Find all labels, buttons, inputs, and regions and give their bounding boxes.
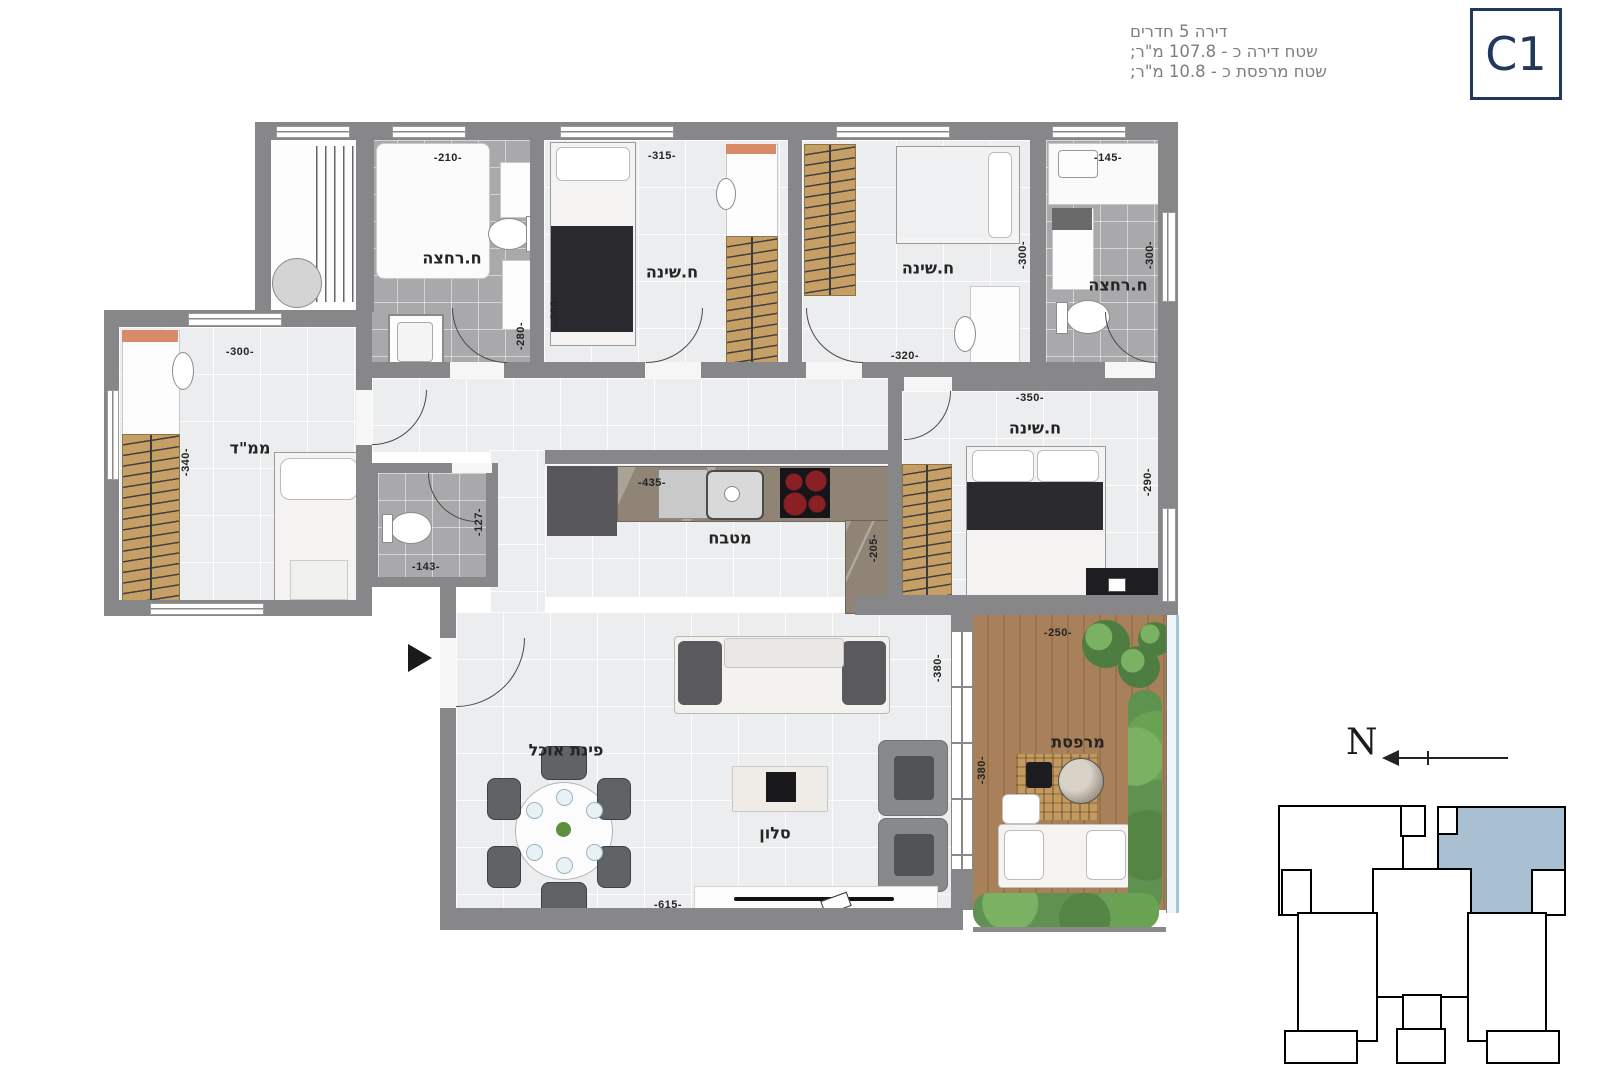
- entrance-arrow-icon: [408, 644, 432, 672]
- room-label-dining: פינת אוכל: [529, 741, 604, 760]
- wall: [356, 140, 374, 312]
- dim-bathroom2-width: -145-: [1094, 152, 1122, 164]
- sofa-pillow: [678, 641, 722, 705]
- wall: [486, 473, 498, 577]
- key-plan-unit: [1486, 1030, 1560, 1064]
- toilet-tank: [1056, 302, 1068, 334]
- toilet-bowl: [390, 512, 432, 544]
- desk-accent: [726, 144, 776, 154]
- desk: [122, 330, 180, 436]
- glass-railing: [1166, 615, 1179, 913]
- dim-bathroom2-height: -300-: [1144, 241, 1156, 269]
- room-label-living: סלון: [759, 824, 791, 843]
- wardrobe: [902, 464, 952, 610]
- header-text-block: דירה 5 חדרים שטח דירה כ - 107.8 מ"ר; שטח…: [1130, 22, 1456, 82]
- window: [188, 313, 282, 326]
- door-threshold: [1105, 362, 1155, 378]
- room-label-kitchen: מטבח: [708, 529, 751, 548]
- wall: [951, 868, 973, 910]
- wardrobe: [726, 236, 778, 364]
- window: [276, 126, 350, 138]
- desk-accent: [122, 330, 178, 342]
- sliding-door: [951, 631, 973, 870]
- door-threshold: [645, 362, 701, 378]
- sofa-cushions: [724, 638, 844, 668]
- key-plan-core: [1400, 805, 1426, 837]
- cooktop: [780, 468, 830, 518]
- floor-plan-page: דירה 5 חדרים שטח דירה כ - 107.8 מ"ר; שטח…: [0, 0, 1600, 1067]
- sink-basin: [1058, 150, 1098, 178]
- dim-bedroom2-height: -300-: [1017, 241, 1029, 269]
- window: [560, 126, 674, 138]
- wall: [530, 140, 544, 364]
- armchair-pillow: [894, 834, 934, 876]
- room-label-balcony: מרפסת: [1051, 733, 1105, 752]
- room-label-master-bedroom: ח.שינה: [1009, 419, 1061, 438]
- unit-code-badge: C1: [1470, 8, 1562, 100]
- outdoor-cushion: [1086, 830, 1126, 880]
- key-plan-notch: [1281, 869, 1312, 916]
- dim-bedroom1-width: -315-: [648, 150, 676, 162]
- room-label-bedroom2: ח.שינה: [902, 259, 954, 278]
- north-arrow-line: [1396, 757, 1508, 759]
- place-setting: [526, 844, 543, 861]
- dim-master-height: -290-: [1142, 468, 1154, 496]
- dim-bedroom2-width: -320-: [891, 350, 919, 362]
- door-threshold: [450, 362, 504, 378]
- desk-chair: [172, 352, 194, 390]
- desk-chair: [954, 316, 976, 352]
- place-setting: [586, 802, 603, 819]
- wall: [368, 577, 498, 587]
- wall: [951, 615, 973, 631]
- sofa-pillow: [842, 641, 886, 705]
- dim-balcony-width: -250-: [1044, 627, 1072, 639]
- north-arrow-icon: [1382, 750, 1399, 766]
- dresser-decor: [1108, 578, 1126, 592]
- bed-blanket: [551, 226, 633, 332]
- window: [392, 126, 466, 138]
- passage-floor: [490, 450, 545, 614]
- dim-balcony-height: -380-: [976, 756, 988, 784]
- drying-rack: [316, 146, 356, 302]
- dim-bathroom1-width: -210-: [434, 152, 462, 164]
- wall: [440, 587, 456, 913]
- key-plan-unit: [1467, 912, 1547, 1042]
- dining-chair: [487, 846, 521, 888]
- north-label: N: [1346, 722, 1378, 763]
- toilet-bowl: [488, 218, 530, 250]
- faucet: [724, 486, 740, 502]
- wall: [545, 450, 902, 464]
- door-threshold: [904, 377, 952, 391]
- dim-living-height: -380-: [932, 654, 944, 682]
- bed-pillow: [1037, 450, 1099, 482]
- place-setting: [526, 802, 543, 819]
- table-tray: [766, 772, 796, 802]
- wardrobe: [122, 434, 180, 606]
- dim-master-width: -350-: [1016, 392, 1044, 404]
- wardrobe: [804, 144, 856, 296]
- door-threshold: [440, 638, 456, 708]
- tv: [734, 897, 894, 901]
- hedge: [1128, 690, 1162, 912]
- outdoor-tray: [1026, 762, 1052, 788]
- bed-pillow: [556, 147, 630, 181]
- unit-code-label: C1: [1485, 27, 1546, 81]
- door-threshold: [806, 362, 862, 378]
- place-setting: [586, 844, 603, 861]
- balcony-rail: [973, 927, 1166, 932]
- dim-kitchen-height: -205-: [868, 534, 880, 562]
- key-plan-unit: [1372, 868, 1472, 998]
- bed-pillow: [972, 450, 1034, 482]
- room-label-bathroom1: ח.רחצה: [422, 249, 481, 268]
- dim-safe-room-width: -300-: [226, 346, 254, 358]
- bed-pillow: [280, 458, 358, 500]
- key-plan-unit: [1284, 1030, 1358, 1064]
- window: [1162, 508, 1176, 602]
- key-plan-unit: [1297, 912, 1378, 1042]
- window: [1052, 126, 1126, 138]
- outdoor-seat: [1002, 794, 1040, 824]
- dim-wc-height: -127-: [473, 508, 485, 536]
- place-setting: [556, 789, 573, 806]
- wall: [440, 908, 963, 930]
- door-threshold: [356, 390, 372, 445]
- toilet-tank: [382, 514, 393, 543]
- door-threshold: [452, 463, 492, 473]
- wall: [855, 595, 1178, 615]
- dim-safe-room-height: -340-: [180, 448, 192, 476]
- wall: [888, 391, 902, 597]
- north-arrow-tick: [1427, 751, 1429, 765]
- shower-tray: [397, 322, 433, 362]
- desk-chair: [716, 178, 736, 210]
- key-plan-notch: [1531, 869, 1566, 916]
- hallway-floor: [372, 378, 888, 452]
- place-setting: [556, 857, 573, 874]
- dim-bathroom1-height: -280-: [515, 322, 527, 350]
- dim-wc-width: -143-: [412, 561, 440, 573]
- wall: [368, 473, 378, 577]
- bed-blanket: [967, 482, 1103, 530]
- room-label-safe-room: ממ"ד: [230, 439, 271, 458]
- hedge: [973, 893, 1159, 929]
- key-plan-core: [1396, 1028, 1446, 1064]
- dim-bedroom1-height: -300-: [549, 296, 561, 324]
- bed-pillow: [988, 152, 1012, 238]
- boiler: [272, 258, 322, 308]
- room-label-bathroom2: ח.רחצה: [1088, 276, 1147, 295]
- outdoor-cushion: [1004, 830, 1044, 880]
- bed-blanket: [898, 150, 986, 238]
- header-line-2: שטח דירה כ - 107.8 מ"ר;: [1130, 42, 1456, 62]
- window: [150, 603, 264, 615]
- wall: [788, 140, 802, 364]
- dim-living-width: -615-: [654, 899, 682, 911]
- wall: [1030, 140, 1046, 364]
- window: [836, 126, 950, 138]
- centerpiece: [556, 822, 571, 837]
- dim-kitchen-width: -435-: [638, 477, 666, 489]
- header-line-1: דירה 5 חדרים: [1130, 22, 1456, 42]
- window: [107, 390, 119, 480]
- armchair-pillow: [894, 756, 934, 800]
- toilet-bowl: [1066, 300, 1110, 334]
- room-label-bedroom1: ח.שינה: [646, 263, 698, 282]
- key-plan-notch: [1437, 806, 1458, 835]
- dining-chair: [487, 778, 521, 820]
- wall: [255, 140, 271, 312]
- window: [1162, 212, 1176, 302]
- header-line-3: שטח מרפסת כ - 10.8 מ"ר;: [1130, 62, 1456, 82]
- vanity-top: [1052, 208, 1092, 230]
- outdoor-table: [1058, 758, 1104, 804]
- bed-throw: [290, 560, 348, 600]
- refrigerator: [547, 466, 617, 536]
